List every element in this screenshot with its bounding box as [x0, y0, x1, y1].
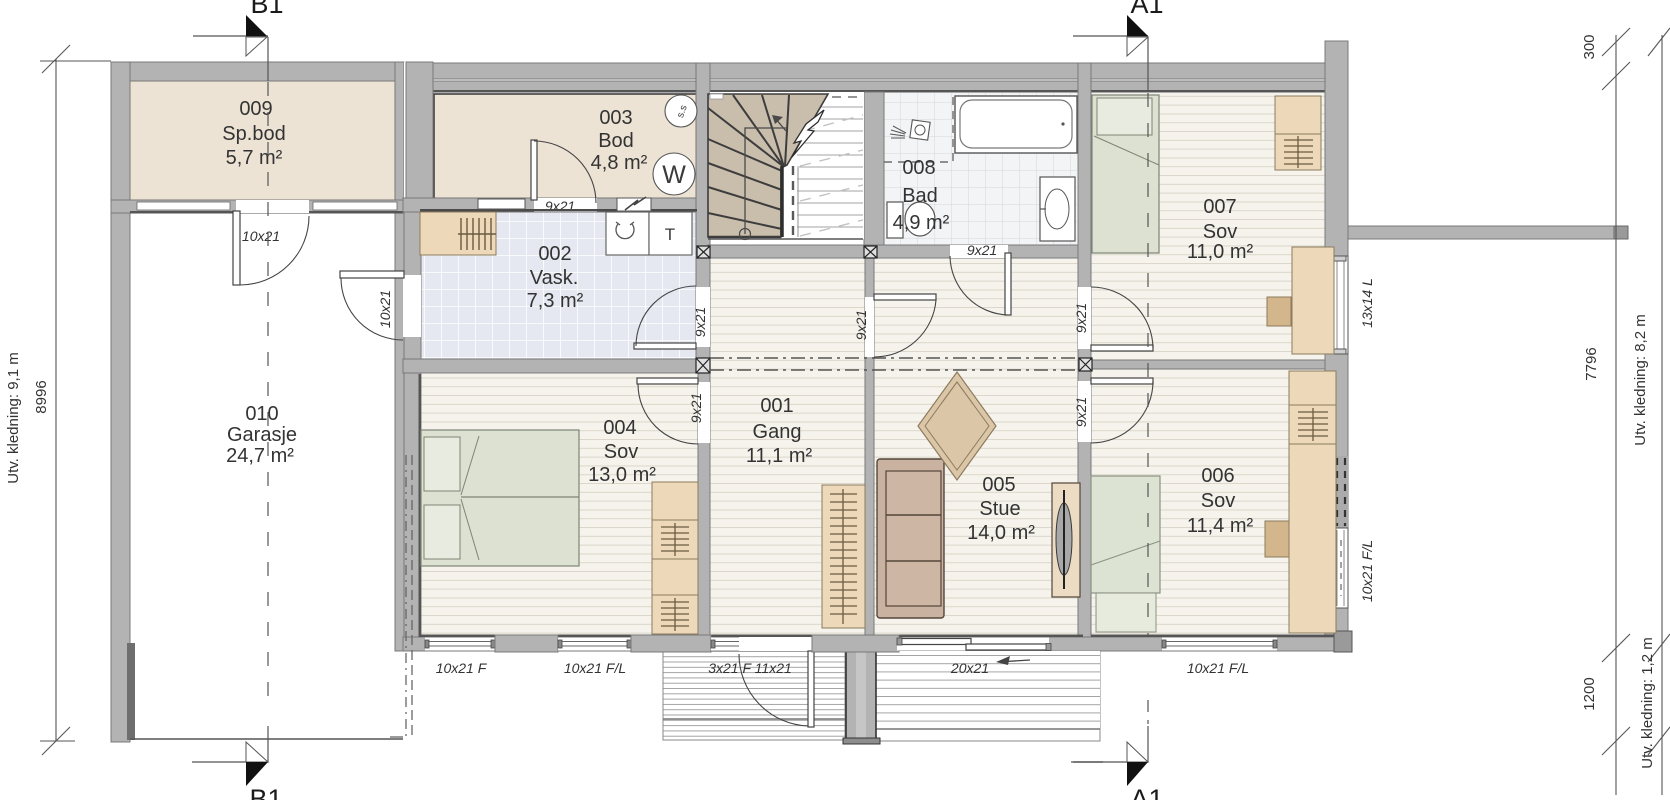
svg-text:9x21: 9x21 [545, 198, 575, 214]
svg-text:007: 007 [1203, 196, 1236, 218]
svg-text:13,0 m²: 13,0 m² [588, 464, 656, 486]
svg-text:A1: A1 [1130, 0, 1163, 19]
svg-text:10x21 F: 10x21 F [436, 660, 488, 676]
svg-text:Bad: Bad [902, 185, 938, 207]
svg-text:9x21: 9x21 [1073, 303, 1089, 333]
svg-text:Sov: Sov [1203, 221, 1237, 243]
svg-text:A1: A1 [1130, 784, 1163, 800]
svg-text:13x14 L: 13x14 L [1359, 278, 1375, 328]
svg-text:9x21: 9x21 [853, 310, 869, 340]
svg-text:Gang: Gang [753, 421, 802, 443]
svg-text:9x21: 9x21 [1073, 397, 1089, 427]
svg-text:1200: 1200 [1581, 677, 1598, 710]
svg-text:24,7 m²: 24,7 m² [226, 445, 294, 467]
svg-text:Sov: Sov [1201, 490, 1235, 512]
svg-text:002: 002 [538, 243, 571, 265]
svg-text:10x21 F/L: 10x21 F/L [1187, 660, 1249, 676]
svg-text:9x21: 9x21 [967, 242, 997, 258]
svg-text:B1: B1 [249, 784, 282, 800]
svg-text:B1: B1 [250, 0, 283, 19]
svg-text:Utv. kledning: 1,2 m: Utv. kledning: 1,2 m [1639, 637, 1656, 768]
svg-text:Sp.bod: Sp.bod [222, 123, 285, 145]
svg-text:3x21 F 11x21: 3x21 F 11x21 [708, 660, 792, 676]
svg-text:4,9 m²: 4,9 m² [893, 212, 950, 234]
svg-text:Stue: Stue [979, 498, 1020, 520]
svg-text:8996: 8996 [33, 380, 50, 413]
svg-text:004: 004 [603, 417, 636, 439]
svg-text:7796: 7796 [1583, 347, 1600, 380]
svg-text:4,8 m²: 4,8 m² [591, 152, 648, 174]
svg-text:10x21 F/L: 10x21 F/L [1359, 540, 1375, 602]
svg-text:T: T [665, 225, 675, 244]
svg-text:5,7 m²: 5,7 m² [226, 147, 283, 169]
svg-text:20x21: 20x21 [950, 660, 989, 676]
svg-text:9x21: 9x21 [688, 393, 704, 423]
svg-text:10x21 F/L: 10x21 F/L [564, 660, 626, 676]
svg-text:008: 008 [902, 157, 935, 179]
svg-text:10x21: 10x21 [377, 290, 393, 328]
svg-text:005: 005 [982, 474, 1015, 496]
svg-text:001: 001 [760, 395, 793, 417]
svg-text:Utv. kledning: 8,2 m: Utv. kledning: 8,2 m [1632, 314, 1649, 445]
svg-text:Vask.: Vask. [530, 267, 579, 289]
svg-text:14,0 m²: 14,0 m² [967, 522, 1035, 544]
svg-text:11,4 m²: 11,4 m² [1187, 515, 1254, 537]
svg-text:W: W [662, 161, 686, 189]
svg-text:10x21: 10x21 [242, 228, 280, 244]
svg-text:010: 010 [245, 403, 278, 425]
svg-text:9x21: 9x21 [692, 307, 708, 337]
svg-text:003: 003 [599, 107, 632, 129]
svg-text:Garasje: Garasje [227, 424, 297, 446]
svg-text:Bod: Bod [598, 130, 634, 152]
svg-text:7,3 m²: 7,3 m² [527, 290, 584, 312]
svg-text:Utv. kledning: 9,1 m: Utv. kledning: 9,1 m [5, 352, 22, 483]
svg-text:11,1 m²: 11,1 m² [746, 445, 813, 467]
svg-text:Sov: Sov [604, 441, 638, 463]
svg-text:006: 006 [1201, 465, 1234, 487]
svg-text:11,0 m²: 11,0 m² [1187, 241, 1254, 263]
svg-text:300: 300 [1581, 34, 1598, 59]
